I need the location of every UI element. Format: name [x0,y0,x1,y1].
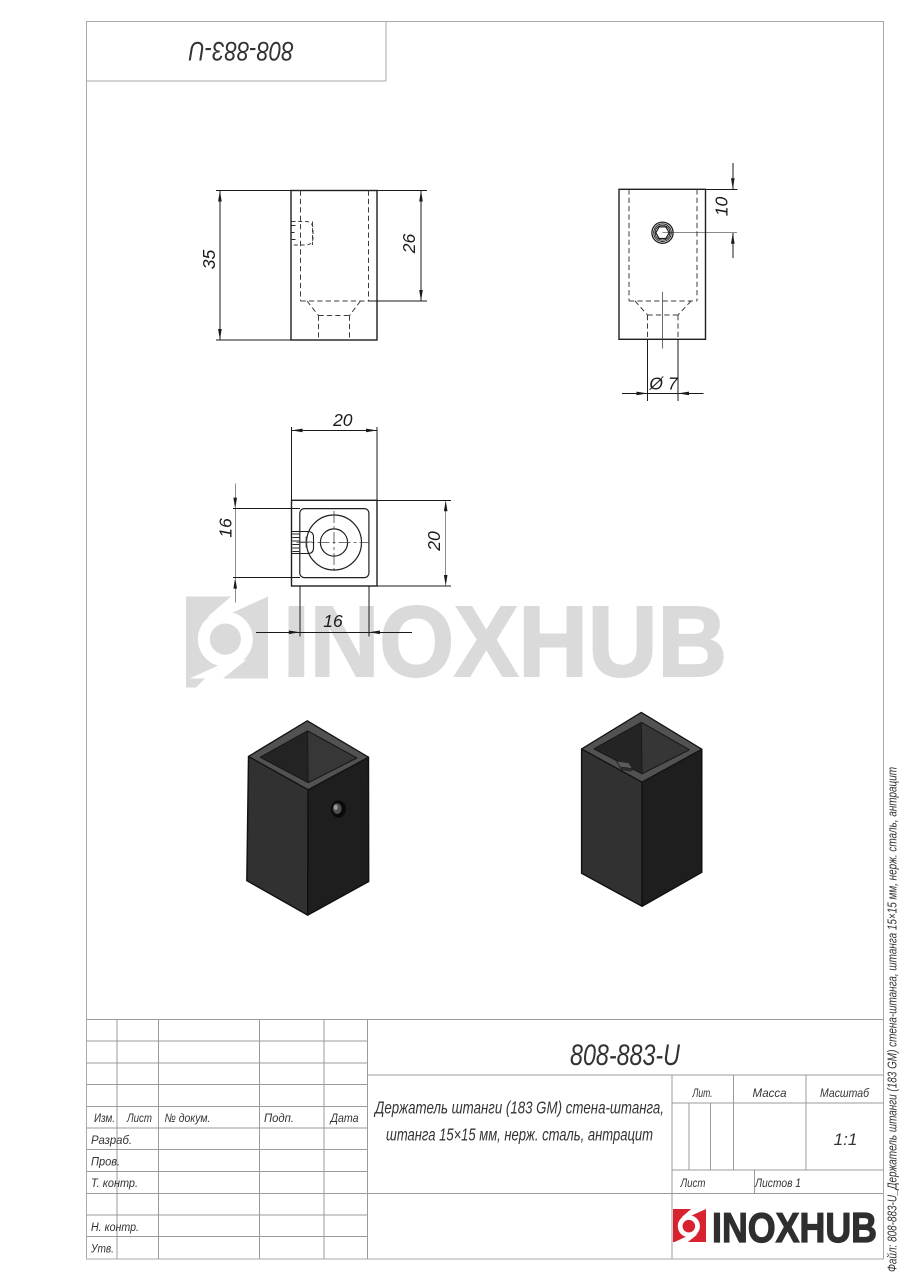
svg-text:35: 35 [199,250,219,270]
svg-text:Лист: Лист [680,1176,706,1190]
svg-text:Подп.: Подп. [264,1111,294,1125]
svg-text:16: 16 [216,518,236,538]
svg-text:№ докум.: № докум. [165,1111,211,1125]
svg-text:Утв.: Утв. [90,1241,114,1255]
svg-text:Масштаб: Масштаб [820,1086,870,1100]
svg-text:Файл: 808-883-U_Держатель штан: Файл: 808-883-U_Держатель штанги (183 GM… [886,767,900,1272]
svg-text:Дата: Дата [329,1111,359,1125]
svg-text:Держатель штанги (183 GM) стен: Держатель штанги (183 GM) стена-штанга, [373,1098,664,1118]
svg-text:Лист: Лист [126,1111,152,1125]
svg-text:Разраб.: Разраб. [91,1133,132,1147]
svg-text:Пров.: Пров. [91,1155,120,1169]
svg-text:Лит.: Лит. [692,1086,713,1100]
svg-text:20: 20 [424,531,444,552]
svg-text:20: 20 [332,410,353,430]
svg-text:Листов 1: Листов 1 [754,1176,801,1190]
svg-text:808-883-U: 808-883-U [188,36,293,66]
svg-text:1:1: 1:1 [834,1130,858,1149]
svg-text:Т. контр.: Т. контр. [91,1176,138,1190]
svg-text:INOXHUB: INOXHUB [283,586,727,698]
svg-text:808-883-U: 808-883-U [570,1039,680,1072]
svg-text:Ø 7: Ø 7 [648,374,678,394]
svg-text:26: 26 [399,234,419,255]
svg-text:10: 10 [712,197,732,217]
svg-text:Изм.: Изм. [94,1111,115,1125]
svg-text:16: 16 [323,611,343,631]
svg-text:Масса: Масса [753,1086,787,1100]
svg-text:штанга 15×15 мм, нерж. сталь,: штанга 15×15 мм, нерж. сталь, антрацит [386,1125,653,1145]
svg-text:Н. контр.: Н. контр. [91,1220,139,1234]
svg-text:INOXHUB: INOXHUB [712,1204,877,1251]
